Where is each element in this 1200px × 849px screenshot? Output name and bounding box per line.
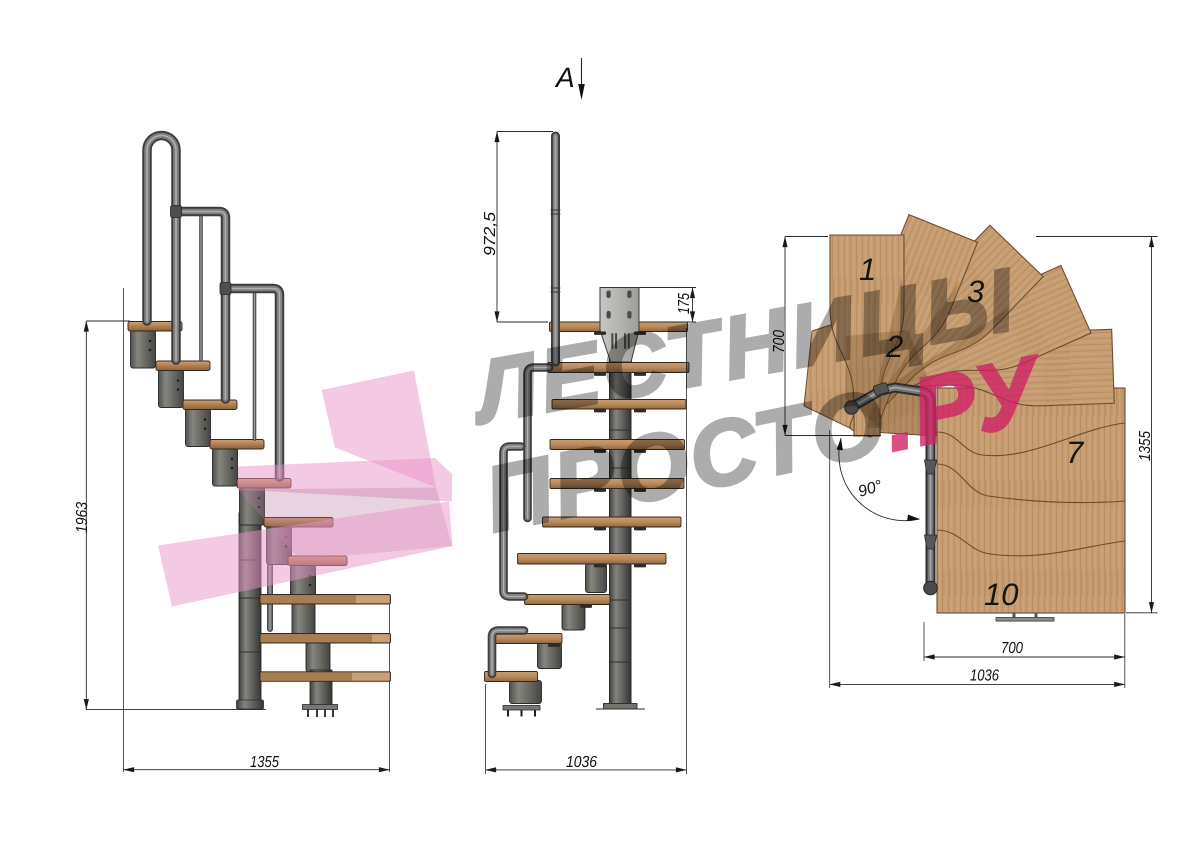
svg-text:972,5: 972,5 xyxy=(482,212,499,256)
svg-text:1355: 1355 xyxy=(1137,431,1154,461)
svg-text:1036: 1036 xyxy=(566,754,597,771)
svg-text:А: А xyxy=(554,62,575,93)
svg-text:1036: 1036 xyxy=(970,668,999,685)
svg-text:700: 700 xyxy=(1001,640,1023,657)
svg-text:1963: 1963 xyxy=(74,502,91,533)
svg-text:7: 7 xyxy=(1066,435,1085,470)
svg-text:10: 10 xyxy=(984,577,1018,612)
svg-text:1355: 1355 xyxy=(250,754,279,771)
